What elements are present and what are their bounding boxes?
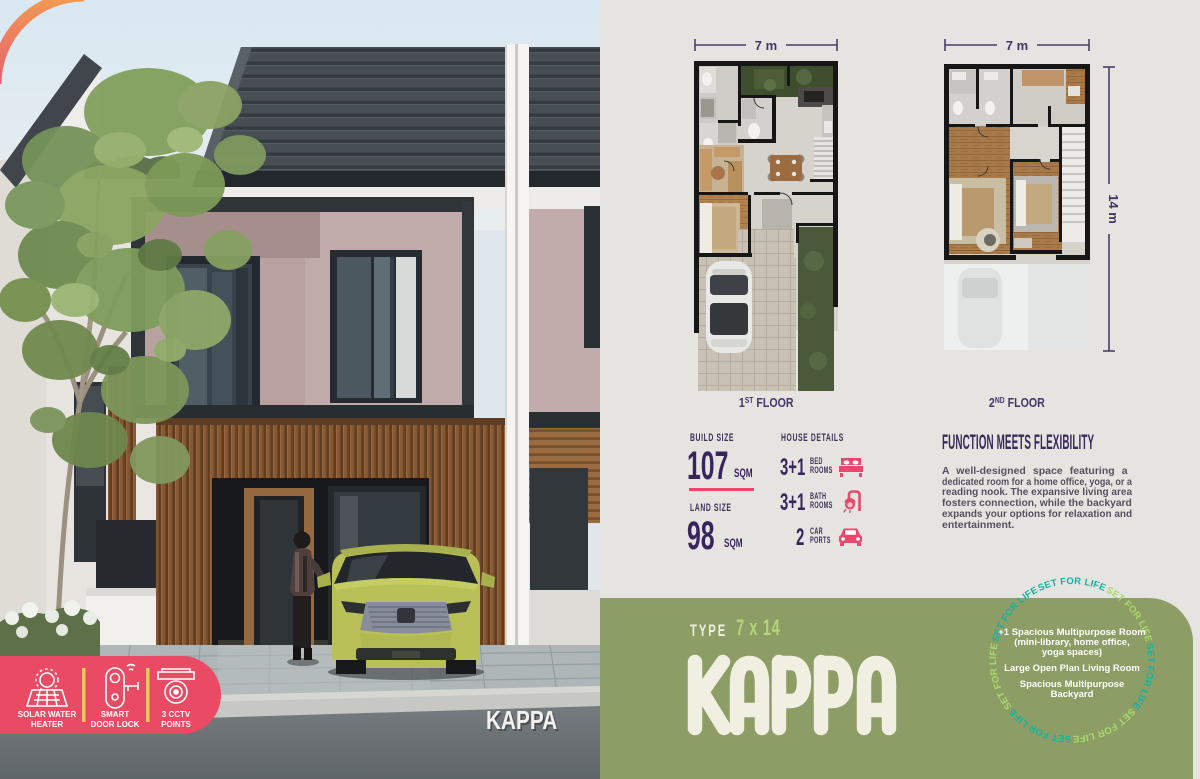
svg-text:HEATER: HEATER <box>31 720 64 729</box>
svg-text:Large Open Plan Living Room: Large Open Plan Living Room <box>1004 663 1140 674</box>
svg-text:KAPPA: KAPPA <box>486 706 557 735</box>
svg-text:7 m: 7 m <box>1006 38 1028 53</box>
svg-text:DOOR LOCK: DOOR LOCK <box>91 720 140 729</box>
svg-text:Backyard: Backyard <box>1051 689 1094 700</box>
svg-text:7 m: 7 m <box>755 38 777 53</box>
svg-text:SMART: SMART <box>101 710 130 719</box>
svg-text:3 CCTV: 3 CCTV <box>162 710 191 719</box>
svg-text:yoga spaces): yoga spaces) <box>1042 647 1102 658</box>
svg-text:SET FOR LIFE: SET FOR LIFE <box>974 638 1028 712</box>
svg-text:14 m: 14 m <box>1106 194 1121 224</box>
svg-text:SET FOR LIFE: SET FOR LIFE <box>1036 560 1111 618</box>
svg-text:SET FOR LIFE: SET FOR LIFE <box>1108 640 1172 714</box>
svg-text:SET FOR LIFE: SET FOR LIFE <box>1069 704 1141 751</box>
svg-text:SOLAR WATER: SOLAR WATER <box>18 710 77 719</box>
svg-text:POINTS: POINTS <box>161 720 191 729</box>
